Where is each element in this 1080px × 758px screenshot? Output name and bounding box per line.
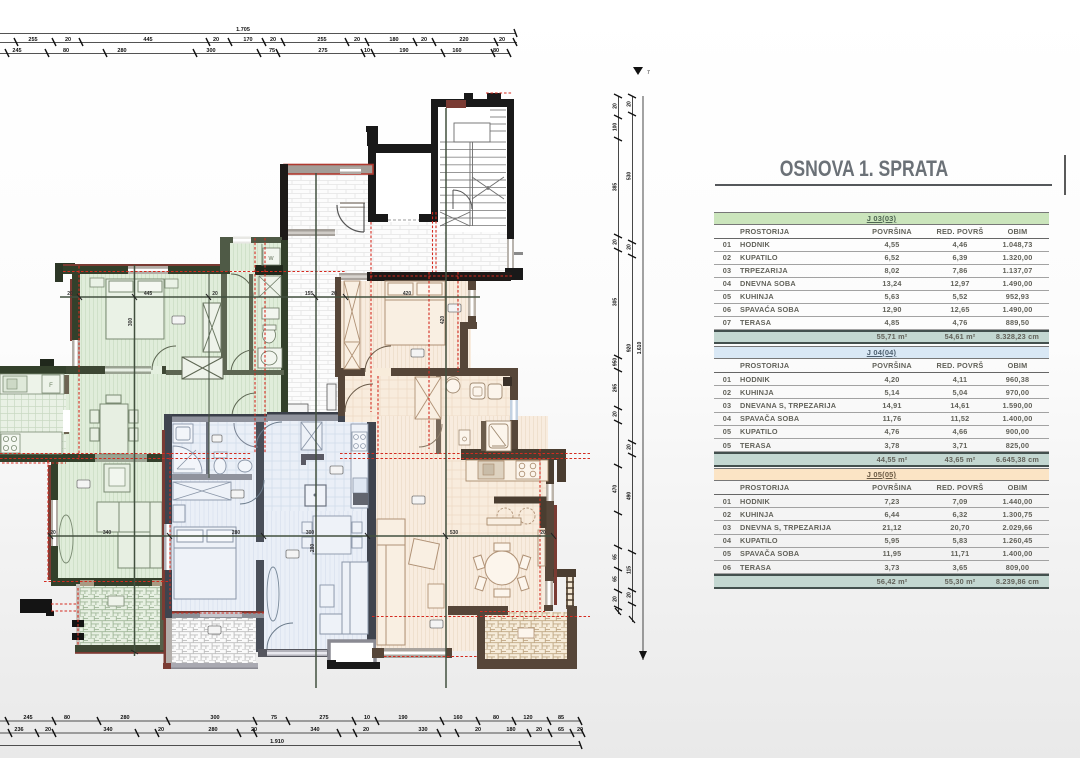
svg-text:20: 20 (627, 244, 633, 250)
svg-text:330: 330 (418, 727, 427, 733)
svg-text:20: 20 (213, 37, 219, 43)
svg-text:20: 20 (251, 727, 257, 733)
svg-text:530: 530 (450, 530, 459, 536)
svg-text:20: 20 (613, 239, 619, 245)
svg-text:115: 115 (627, 566, 633, 574)
svg-text:20: 20 (499, 37, 505, 43)
svg-text:340: 340 (103, 530, 112, 536)
svg-text:20: 20 (627, 101, 633, 107)
svg-text:920: 920 (627, 344, 633, 353)
svg-text:20: 20 (363, 727, 369, 733)
svg-text:1.910: 1.910 (270, 739, 284, 745)
svg-text:300: 300 (206, 48, 215, 54)
svg-text:280: 280 (117, 48, 126, 54)
svg-text:220: 220 (459, 37, 468, 43)
svg-text:20: 20 (613, 596, 619, 602)
svg-text:20: 20 (65, 37, 71, 43)
svg-text:280: 280 (310, 544, 316, 553)
svg-text:1.610: 1.610 (637, 342, 643, 355)
svg-text:190: 190 (398, 715, 407, 721)
svg-text:20: 20 (270, 37, 276, 43)
svg-text:F: F (49, 383, 53, 389)
svg-text:385: 385 (613, 183, 619, 192)
svg-text:65: 65 (613, 554, 619, 560)
svg-text:10: 10 (364, 715, 370, 721)
svg-text:20: 20 (577, 727, 583, 733)
svg-text:445: 445 (144, 291, 153, 297)
svg-text:305: 305 (613, 298, 619, 307)
svg-text:75: 75 (271, 715, 277, 721)
svg-text:420: 420 (403, 291, 412, 297)
svg-text:85: 85 (558, 715, 564, 721)
svg-text:280: 280 (232, 530, 241, 536)
svg-text:65: 65 (558, 727, 564, 733)
svg-text:160: 160 (453, 715, 462, 721)
svg-text:w: w (267, 255, 274, 262)
svg-text:470: 470 (613, 485, 619, 494)
svg-text:20: 20 (212, 291, 218, 297)
svg-text:20: 20 (331, 291, 337, 297)
svg-text:340: 340 (310, 727, 319, 733)
svg-text:80: 80 (493, 715, 499, 721)
svg-text:245: 245 (12, 48, 21, 54)
svg-text:236: 236 (14, 727, 23, 733)
svg-text:20: 20 (50, 530, 56, 536)
svg-text:100: 100 (613, 123, 619, 132)
svg-text:275: 275 (319, 715, 328, 721)
svg-text:20: 20 (627, 444, 633, 450)
svg-text:20: 20 (540, 530, 546, 536)
svg-text:300: 300 (128, 318, 134, 327)
svg-text:300: 300 (306, 530, 315, 536)
svg-text:420: 420 (440, 316, 446, 325)
svg-text:20: 20 (158, 727, 164, 733)
svg-text:255: 255 (28, 37, 37, 43)
svg-text:170: 170 (243, 37, 252, 43)
svg-text:20: 20 (45, 727, 51, 733)
svg-text:80: 80 (63, 48, 69, 54)
svg-text:20: 20 (354, 37, 360, 43)
svg-text:7: 7 (647, 70, 650, 76)
svg-text:255: 255 (317, 37, 326, 43)
svg-text:20: 20 (475, 727, 481, 733)
svg-text:280: 280 (120, 715, 129, 721)
svg-text:80: 80 (64, 715, 70, 721)
svg-text:180: 180 (506, 727, 515, 733)
svg-text:180: 180 (389, 37, 398, 43)
svg-text:120: 120 (523, 715, 532, 721)
svg-text:245: 245 (23, 715, 32, 721)
svg-text:275: 275 (318, 48, 327, 54)
svg-text:20: 20 (613, 411, 619, 417)
svg-text:950: 950 (613, 358, 619, 367)
svg-text:20: 20 (536, 727, 542, 733)
svg-text:80: 80 (493, 48, 499, 54)
svg-text:190: 190 (399, 48, 408, 54)
svg-text:20: 20 (67, 291, 73, 297)
svg-text:75: 75 (269, 48, 275, 54)
svg-text:1.705: 1.705 (236, 27, 250, 33)
svg-text:155: 155 (305, 291, 314, 297)
svg-text:280: 280 (208, 727, 217, 733)
svg-text:20: 20 (627, 592, 633, 598)
svg-text:160: 160 (452, 48, 461, 54)
svg-text:20: 20 (613, 103, 619, 109)
svg-text:340: 340 (103, 727, 112, 733)
svg-text:265: 265 (613, 384, 619, 393)
svg-text:65: 65 (613, 576, 619, 582)
svg-text:10: 10 (364, 48, 370, 54)
svg-text:20: 20 (421, 37, 427, 43)
svg-text:445: 445 (143, 37, 152, 43)
svg-text:530: 530 (627, 172, 633, 181)
svg-text:300: 300 (210, 715, 219, 721)
svg-text:490: 490 (627, 492, 633, 501)
